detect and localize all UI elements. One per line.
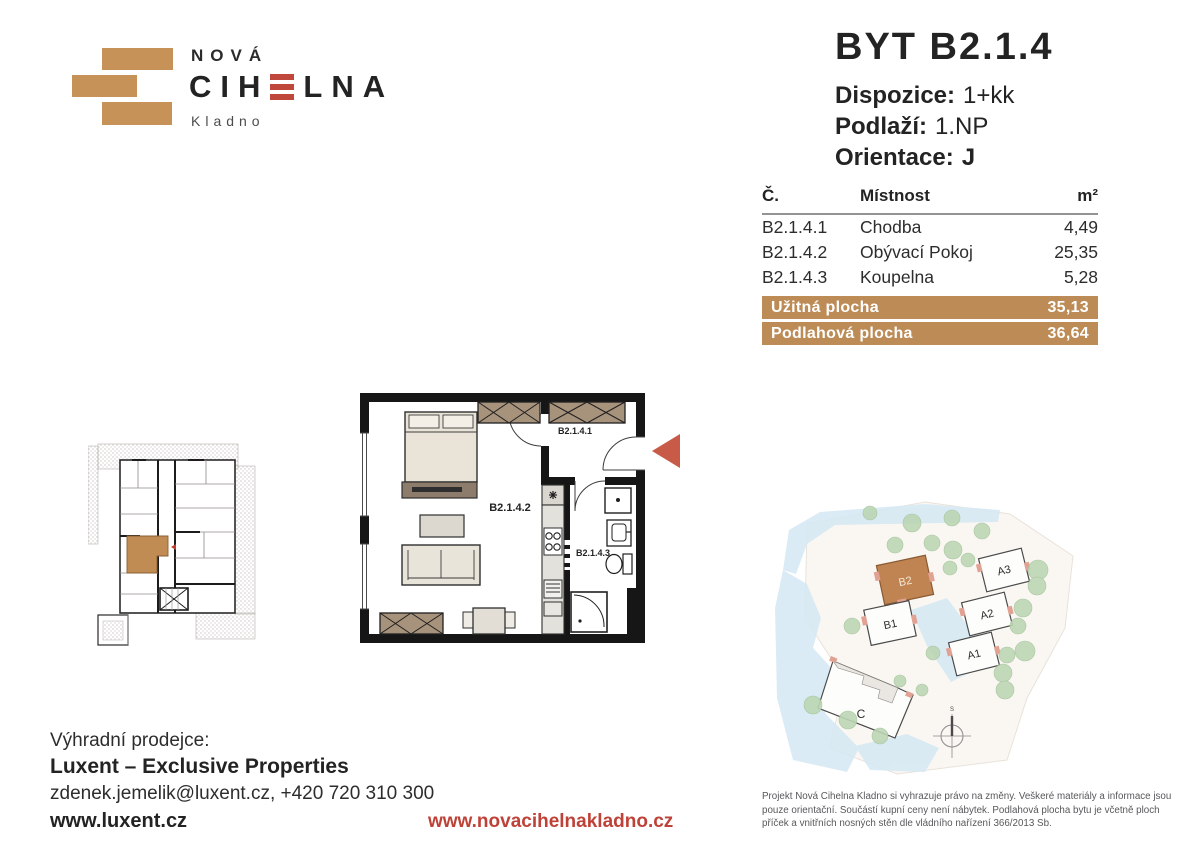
brand-city: Kladno xyxy=(191,113,265,129)
compass-label: S xyxy=(950,707,954,713)
kitchen-icon xyxy=(542,485,564,634)
entrance-arrow-icon xyxy=(652,434,680,468)
room-label-living: B2.1.4.2 xyxy=(489,502,531,514)
room-label-hall: B2.1.4.1 xyxy=(558,426,592,436)
brick-icon xyxy=(102,102,172,125)
brand-e-bars-icon xyxy=(270,72,294,102)
table-row: B2.1.4.3 Koupelna 5,28 xyxy=(762,265,1098,290)
building-floor-plan xyxy=(88,436,258,659)
apartment-datasheet: NOVÁ CIH LNA Kladno BYT B2.1.4 Dispozice… xyxy=(0,0,1199,845)
brand-name-top: NOVÁ xyxy=(191,46,268,66)
sofa-icon xyxy=(402,545,480,585)
spec-podlazi: Podlaží:1.NP xyxy=(835,111,1014,142)
washing-machine-icon xyxy=(605,488,631,513)
apartment-floor-plan: B2.1.4.1 B2.1.4.2 B2.1.4.3 xyxy=(355,390,685,653)
table-row: B2.1.4.1 Chodba 4,49 xyxy=(762,215,1098,240)
total-usable-area: Užitná plocha 35,13 xyxy=(762,296,1098,319)
site-plan: C B2 B1 A3 xyxy=(775,498,1095,788)
total-floor-area: Podlahová plocha 36,64 xyxy=(762,322,1098,345)
seller-name: Luxent – Exclusive Properties xyxy=(50,755,349,779)
header-room: Místnost xyxy=(860,186,1028,206)
header-area: m² xyxy=(1028,186,1098,206)
seller-website-link[interactable]: www.luxent.cz xyxy=(50,810,187,833)
project-website-link[interactable]: www.novacihelnakladno.cz xyxy=(428,811,673,833)
dining-table-icon xyxy=(463,608,515,634)
brand-name: CIH LNA xyxy=(189,69,394,105)
legal-disclaimer: Projekt Nová Cihelna Kladno si vyhrazuje… xyxy=(762,790,1179,831)
room-table-header: Č. Místnost m² xyxy=(762,186,1098,215)
bathroom-sink-icon xyxy=(607,520,631,546)
brick-icon xyxy=(72,75,137,97)
seller-contact[interactable]: zdenek.jemelik@luxent.cz, +420 720 310 3… xyxy=(50,783,434,805)
unit-title: BYT B2.1.4 xyxy=(835,26,1054,69)
bed-icon xyxy=(405,412,477,482)
brand-name-right: LNA xyxy=(303,69,394,105)
spec-dispozice: Dispozice:1+kk xyxy=(835,80,1014,111)
brand-name-left: CIH xyxy=(189,69,269,105)
stair-core-icon xyxy=(160,588,188,610)
coffee-table-icon xyxy=(420,515,464,537)
shower-icon xyxy=(571,592,607,632)
table-row: B2.1.4.2 Obývací Pokoj 25,35 xyxy=(762,240,1098,265)
tv-bench-icon xyxy=(402,482,477,498)
room-table: Č. Místnost m² B2.1.4.1 Chodba 4,49 B2.1… xyxy=(762,186,1098,345)
svg-text:C: C xyxy=(857,707,866,721)
brick-icon xyxy=(102,48,173,70)
seller-intro: Výhradní prodejce: xyxy=(50,730,210,752)
spec-orientace: Orientace:J xyxy=(835,142,1014,173)
room-label-bath: B2.1.4.3 xyxy=(576,548,610,558)
unit-specs: Dispozice:1+kk Podlaží:1.NP Orientace:J xyxy=(835,80,1014,173)
header-number: Č. xyxy=(762,186,860,206)
